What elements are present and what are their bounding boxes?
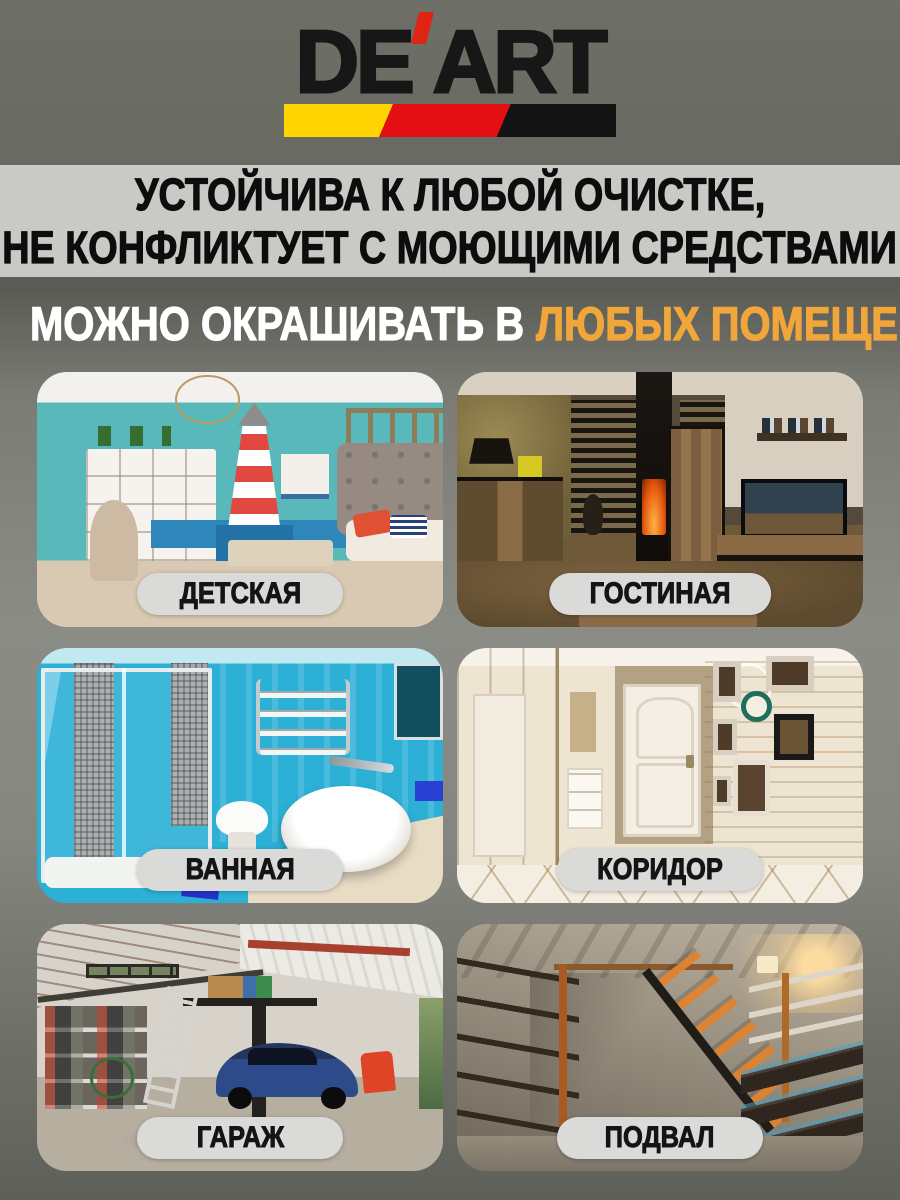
- storage-bench-shape: [228, 540, 334, 566]
- brand-logo-prefix: DE: [295, 12, 411, 111]
- striped-pillow-shape: [390, 515, 427, 538]
- chandelier-shape: [175, 375, 240, 425]
- glass-divider-shape: [122, 668, 126, 882]
- table-lamp-shape: [469, 438, 514, 464]
- door-handle-shape: [686, 755, 693, 768]
- floor-vase-shape: [583, 494, 603, 535]
- room-label-pill: ВАННАЯ: [137, 849, 343, 891]
- brand-logo-suffix: ART: [433, 12, 605, 111]
- clerestory-window-shape: [86, 964, 179, 979]
- room-label-pill: КОРИДОР: [557, 849, 763, 891]
- shelf-post-shape: [559, 964, 567, 1132]
- storage-boxes-shape: [208, 976, 273, 998]
- car-wheel-shape: [321, 1087, 345, 1109]
- room-grid: ДЕТСКАЯ: [37, 372, 863, 1171]
- room-card-basement: ПОДВАЛ: [457, 924, 863, 1171]
- room-label-pill: ДЕТСКАЯ: [137, 573, 343, 615]
- rooms-heading: МОЖНО ОКРАШИВАТЬ ВЛЮБЫХ ПОМЕЩЕНИЯХ: [30, 298, 900, 350]
- toy-trees-shape: [98, 426, 171, 446]
- tv-shape: [741, 479, 847, 538]
- rooms-heading-prefix: МОЖНО ОКРАШИВАТЬ В: [30, 297, 524, 350]
- room-label: ГАРАЖ: [196, 1121, 283, 1155]
- mirror-shape: [394, 663, 443, 740]
- brand-logo-text: DEART: [295, 18, 604, 106]
- room-card-bath: ВАННАЯ: [37, 648, 443, 903]
- picture-frame-shape: [766, 656, 815, 692]
- reflected-door-shape: [473, 694, 526, 857]
- room-label-pill: ГОСТИНАЯ: [549, 573, 771, 615]
- round-frame-shape: [741, 691, 771, 722]
- car-window-shape: [248, 1048, 317, 1065]
- mezzanine-shape: [183, 998, 317, 1005]
- room-card-corridor: КОРИДОР: [457, 648, 863, 903]
- sideboard-shape: [457, 477, 563, 568]
- picture-frame-shape: [713, 776, 731, 807]
- storage-shelves-shape: [45, 1006, 147, 1110]
- bunk-rail-shape: [346, 408, 443, 444]
- window-blinds-shape: [571, 400, 640, 533]
- room-card-kids: ДЕТСКАЯ: [37, 372, 443, 627]
- tv-stand-shape: [717, 535, 863, 563]
- towel-radiator-shape: [256, 679, 349, 756]
- wall-mirror-shape: [567, 689, 599, 755]
- room-label: ПОДВАЛ: [605, 1121, 715, 1155]
- blue-accent-shape: [415, 781, 443, 801]
- brand-apostrophe-mark: [411, 12, 434, 44]
- banner-line-2: НЕ КОНФЛИКТУЕТ С МОЮЩИМИ СРЕДСТВАМИ: [3, 221, 898, 274]
- wall-shelf-shape: [757, 433, 846, 441]
- fireplace-fire-shape: [642, 479, 666, 535]
- brand-logo: DEART: [0, 18, 900, 106]
- console-cabinet-shape: [567, 768, 604, 829]
- promo-image: DEART УСТОЙЧИВА К ЛЮБОЙ ОЧИСТКЕ, НЕ КОНФ…: [0, 0, 900, 1200]
- room-label-pill: ПОДВАЛ: [557, 1117, 763, 1159]
- ladder-shape: [143, 986, 199, 1109]
- car-wheel-shape: [228, 1087, 252, 1109]
- room-label-pill: ГАРАЖ: [137, 1117, 343, 1159]
- rooms-heading-highlight: ЛЮБЫХ ПОМЕЩЕНИЯХ: [536, 297, 900, 350]
- open-door-greenery-shape: [419, 998, 443, 1109]
- chair-shape: [90, 500, 139, 582]
- room-label: КОРИДОР: [597, 853, 723, 887]
- picture-frame-shape: [774, 714, 815, 760]
- room-card-garage: ГАРАЖ: [37, 924, 443, 1171]
- lighthouse-roof-shape: [238, 403, 270, 426]
- room-label: ДЕТСКАЯ: [179, 577, 300, 611]
- room-card-living: ГОСТИНАЯ: [457, 372, 863, 627]
- room-label: ГОСТИНАЯ: [590, 577, 731, 611]
- picture-frame-shape: [733, 760, 770, 816]
- yellow-planter-shape: [518, 456, 542, 476]
- fireplace-column-shape: [636, 372, 673, 576]
- wall-shelf-books-shape: [762, 418, 835, 433]
- picture-frame-shape: [713, 661, 741, 702]
- red-tool-shape: [360, 1051, 396, 1094]
- durability-banner: УСТОЙЧИВА К ЛЮБОЙ ОЧИСТКЕ, НЕ КОНФЛИКТУЕ…: [0, 165, 900, 277]
- wall-cabinet-shape: [281, 454, 330, 500]
- brand-flag-stripe: [284, 104, 616, 137]
- picture-frame-shape: [713, 719, 737, 755]
- banner-line-1: УСТОЙЧИВА К ЛЮБОЙ ОЧИСТКЕ,: [135, 168, 765, 221]
- wall-lamp-shape: [757, 956, 777, 973]
- lighthouse-shape: [228, 426, 281, 531]
- room-label: ВАННАЯ: [185, 853, 294, 887]
